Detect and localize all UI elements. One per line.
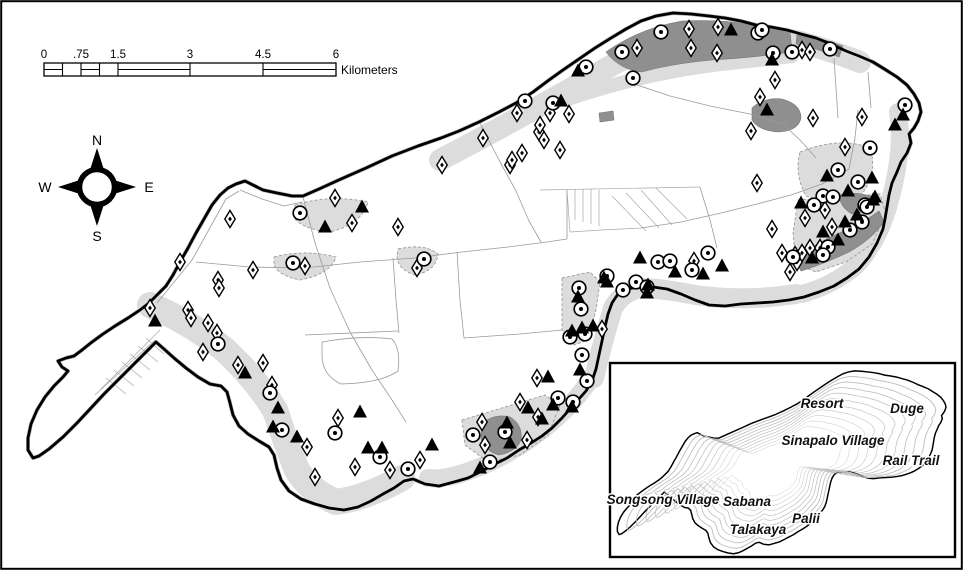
circle-marker xyxy=(518,94,532,108)
circle-marker xyxy=(580,374,594,388)
circle-marker xyxy=(616,283,630,297)
inset-place-label: Resort xyxy=(801,396,844,411)
map-page: 0.751.534.56 Kilometers N S W E ResortDu… xyxy=(0,0,963,570)
circle-marker xyxy=(785,45,799,59)
scale-bar-labels: 0.751.534.56 xyxy=(41,49,339,61)
circle-marker xyxy=(211,337,225,351)
scale-bar-tick-label: 0 xyxy=(41,49,47,61)
circle-marker xyxy=(263,386,277,400)
compass-east-label: E xyxy=(144,179,153,195)
circle-marker xyxy=(483,455,497,469)
compass-west-label: W xyxy=(38,179,52,195)
circle-marker xyxy=(401,462,415,476)
inset-place-label: Talakaya xyxy=(730,522,787,537)
circle-marker xyxy=(466,428,480,442)
circle-marker xyxy=(574,302,588,316)
circle-marker xyxy=(823,42,837,56)
compass-ring xyxy=(80,170,115,205)
circle-marker xyxy=(831,163,845,177)
compass-south-label: S xyxy=(92,228,101,244)
circle-marker xyxy=(328,426,342,440)
scale-bar-unit: Kilometers xyxy=(341,63,398,77)
circle-marker xyxy=(826,190,840,204)
scale-bar-tick-label: 3 xyxy=(187,49,193,61)
map-canvas: 0.751.534.56 Kilometers N S W E ResortDu… xyxy=(0,0,963,570)
circle-marker xyxy=(863,141,877,155)
compass-north-label: N xyxy=(92,132,102,148)
scale-bar-tick-label: 6 xyxy=(333,49,339,61)
circle-marker xyxy=(626,71,640,85)
compass-rose: N S W E xyxy=(38,132,153,244)
circle-marker xyxy=(654,25,668,39)
scale-bar-tick-label: 1.5 xyxy=(110,49,126,61)
circle-marker xyxy=(807,198,821,212)
inset-place-label: Sinapalo Village xyxy=(781,433,885,448)
circle-marker xyxy=(293,206,307,220)
scale-bar-tick-label: 4.5 xyxy=(255,49,271,61)
inset-place-label: Sabana xyxy=(723,494,772,509)
circle-marker xyxy=(615,45,629,59)
inset-place-label: Rail Trail xyxy=(883,453,940,468)
circle-marker xyxy=(286,256,300,270)
circle-marker xyxy=(816,248,830,262)
inset-place-label: Palii xyxy=(792,511,820,526)
scale-bar: 0.751.534.56 Kilometers xyxy=(41,49,398,77)
circle-marker xyxy=(851,175,865,189)
circle-marker xyxy=(786,250,800,264)
inset-place-label: Duge xyxy=(890,401,924,416)
scale-bar-tick-label: .75 xyxy=(73,49,89,61)
inset-place-label: Songsong Village xyxy=(607,492,720,507)
circle-marker xyxy=(898,98,912,112)
circle-marker xyxy=(417,252,431,266)
circle-marker xyxy=(575,348,589,362)
inset-map: ResortDugeSinapalo VillageRail TrailSong… xyxy=(607,363,955,557)
circle-marker xyxy=(755,23,769,37)
circle-marker xyxy=(685,263,699,277)
circle-marker xyxy=(701,246,715,260)
